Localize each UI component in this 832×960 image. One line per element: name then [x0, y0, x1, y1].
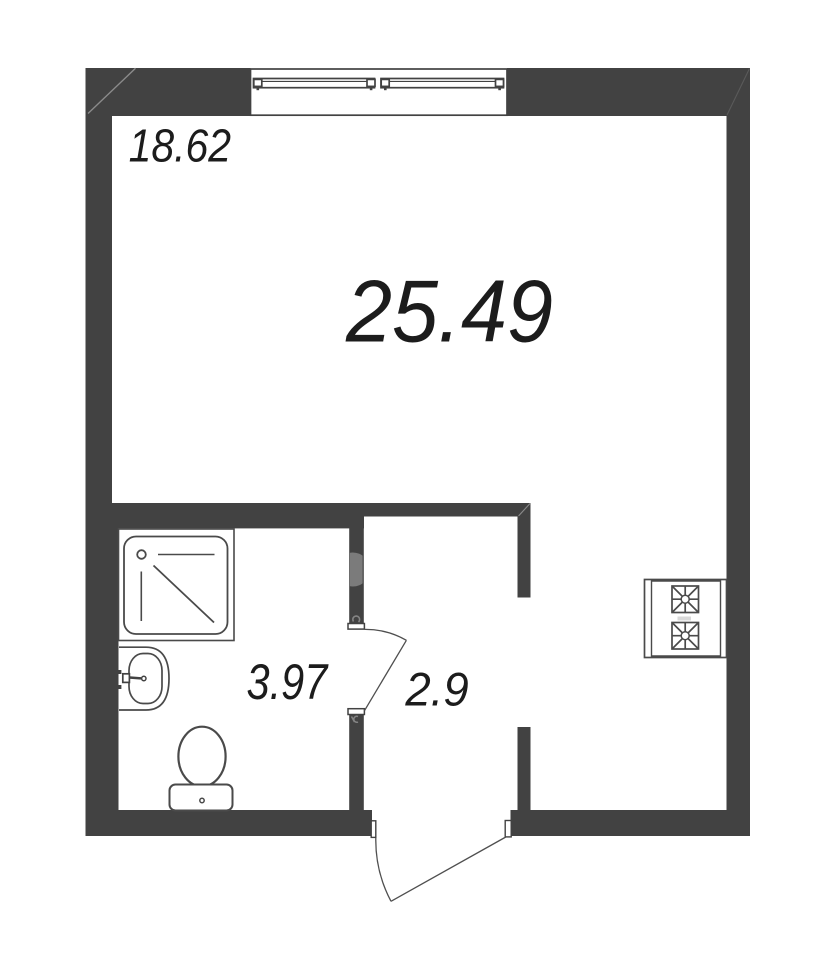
svg-text:3.97: 3.97 [247, 653, 329, 710]
svg-text:2.9: 2.9 [404, 663, 468, 716]
svg-text:18.62: 18.62 [129, 121, 231, 172]
svg-text:25.49: 25.49 [345, 263, 553, 361]
